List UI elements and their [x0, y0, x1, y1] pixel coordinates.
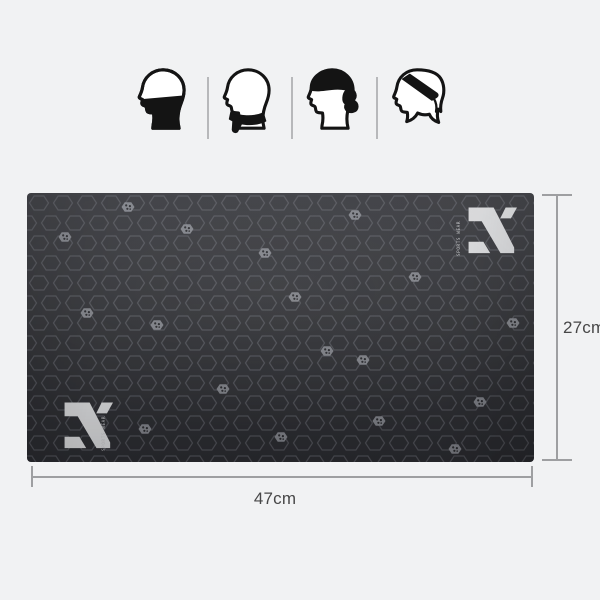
pirate-cap-icon: [297, 63, 371, 137]
usage-pirate-cap: [293, 60, 376, 137]
usage-face-mask: [124, 60, 207, 137]
brand-microtext-top-right: SPORTS WEAR: [456, 221, 462, 256]
width-measure-cap-left: [31, 466, 33, 487]
product-detail-image: SPORTS WEAR SPORTS WEAR 27cm 47cm: [0, 0, 600, 600]
headband-icon: [382, 63, 456, 137]
height-measure-cap-bottom: [542, 459, 572, 461]
height-measure-cap-top: [542, 194, 572, 196]
width-measure-cap-right: [531, 466, 533, 487]
brand-microtext-bottom-left: SPORTS WEAR: [101, 416, 107, 451]
usage-neck-scarf: [209, 60, 292, 137]
bandana-product-photo: SPORTS WEAR SPORTS WEAR: [27, 193, 534, 462]
width-measure-label: 47cm: [235, 489, 315, 509]
width-measure-line: [32, 476, 533, 478]
height-measure-label: 27cm: [563, 318, 600, 338]
usage-icons-row: [124, 60, 460, 140]
face-mask-icon: [128, 63, 202, 137]
usage-headband: [378, 60, 461, 137]
height-measure-line: [556, 195, 558, 461]
neck-scarf-icon: [213, 63, 287, 137]
fabric-svg: SPORTS WEAR SPORTS WEAR: [27, 193, 534, 462]
